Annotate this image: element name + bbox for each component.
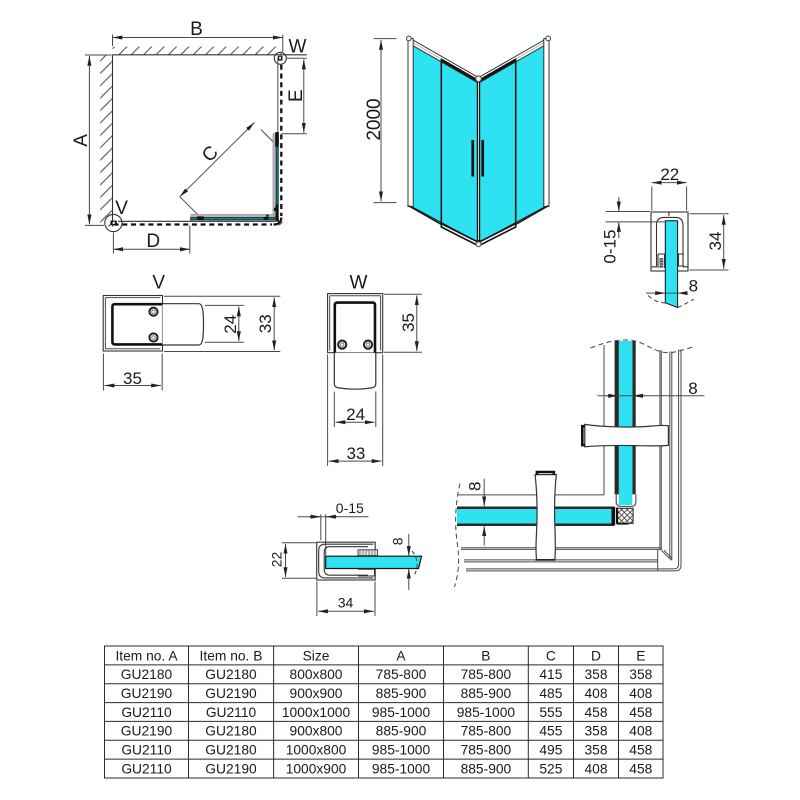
svg-text:GU2180: GU2180 xyxy=(205,743,257,758)
svg-text:Size: Size xyxy=(303,648,330,663)
svg-text:B: B xyxy=(190,19,203,40)
svg-text:Item no. A: Item no. A xyxy=(115,648,178,663)
svg-text:GU2180: GU2180 xyxy=(205,724,257,739)
svg-text:885-900: 885-900 xyxy=(376,724,427,739)
svg-text:8: 8 xyxy=(390,537,406,545)
svg-text:22: 22 xyxy=(660,165,679,184)
svg-text:1000x900: 1000x900 xyxy=(286,761,347,776)
svg-text:GU2180: GU2180 xyxy=(121,667,173,682)
svg-text:GU2180: GU2180 xyxy=(205,667,257,682)
svg-text:985-1000: 985-1000 xyxy=(372,761,431,776)
svg-text:33: 33 xyxy=(346,444,365,463)
svg-text:408: 408 xyxy=(629,724,652,739)
svg-text:35: 35 xyxy=(123,369,142,388)
svg-text:985-1000: 985-1000 xyxy=(372,743,431,758)
svg-text:B: B xyxy=(481,648,490,663)
svg-text:455: 455 xyxy=(539,724,562,739)
svg-text:458: 458 xyxy=(629,743,652,758)
svg-text:785-800: 785-800 xyxy=(376,667,427,682)
svg-text:408: 408 xyxy=(584,686,607,701)
svg-text:GU2190: GU2190 xyxy=(121,686,173,701)
svg-text:W: W xyxy=(289,37,307,58)
svg-text:D: D xyxy=(591,648,601,663)
svg-text:785-800: 785-800 xyxy=(461,667,512,682)
svg-text:E: E xyxy=(286,89,307,102)
svg-text:33: 33 xyxy=(256,314,275,333)
svg-text:0-15: 0-15 xyxy=(600,230,619,264)
svg-text:35: 35 xyxy=(399,313,418,332)
svg-text:495: 495 xyxy=(539,743,562,758)
svg-text:GU2190: GU2190 xyxy=(205,761,257,776)
svg-text:1000x800: 1000x800 xyxy=(286,743,347,758)
svg-text:1000x1000: 1000x1000 xyxy=(282,705,351,720)
svg-text:885-900: 885-900 xyxy=(461,761,512,776)
svg-text:900x800: 900x800 xyxy=(290,724,343,739)
svg-text:GU2110: GU2110 xyxy=(121,705,172,720)
svg-text:800x800: 800x800 xyxy=(290,667,343,682)
svg-text:C: C xyxy=(546,648,556,663)
svg-text:8: 8 xyxy=(466,482,485,491)
svg-text:C: C xyxy=(198,142,223,167)
svg-text:8: 8 xyxy=(688,379,697,398)
svg-text:24: 24 xyxy=(346,405,365,424)
svg-text:785-800: 785-800 xyxy=(461,743,512,758)
svg-text:408: 408 xyxy=(584,761,607,776)
svg-text:GU2190: GU2190 xyxy=(121,724,173,739)
svg-text:358: 358 xyxy=(629,667,652,682)
svg-text:885-900: 885-900 xyxy=(461,686,512,701)
svg-text:0-15: 0-15 xyxy=(336,500,364,516)
svg-text:GU2110: GU2110 xyxy=(121,761,172,776)
svg-text:22: 22 xyxy=(268,552,284,568)
svg-text:885-900: 885-900 xyxy=(376,686,427,701)
svg-text:785-800: 785-800 xyxy=(461,724,512,739)
svg-text:985-1000: 985-1000 xyxy=(372,705,431,720)
svg-text:W: W xyxy=(350,273,368,294)
svg-text:900x900: 900x900 xyxy=(290,686,343,701)
svg-text:E: E xyxy=(636,648,645,663)
svg-text:GU2190: GU2190 xyxy=(205,686,257,701)
svg-text:D: D xyxy=(146,231,160,252)
svg-text:34: 34 xyxy=(338,595,354,611)
svg-text:24: 24 xyxy=(221,315,240,334)
svg-text:525: 525 xyxy=(539,761,562,776)
svg-text:458: 458 xyxy=(629,705,652,720)
svg-text:A: A xyxy=(396,648,406,663)
svg-text:8: 8 xyxy=(689,277,698,296)
svg-text:V: V xyxy=(115,198,128,219)
svg-text:GU2110: GU2110 xyxy=(121,743,172,758)
svg-text:V: V xyxy=(152,273,165,294)
svg-text:358: 358 xyxy=(584,743,607,758)
svg-text:A: A xyxy=(71,134,92,147)
svg-text:2000: 2000 xyxy=(364,98,385,140)
svg-text:555: 555 xyxy=(539,705,562,720)
svg-text:GU2110: GU2110 xyxy=(206,705,257,720)
svg-text:34: 34 xyxy=(706,232,725,251)
svg-text:Item no. B: Item no. B xyxy=(200,648,263,663)
svg-text:458: 458 xyxy=(584,705,607,720)
svg-text:358: 358 xyxy=(584,724,607,739)
svg-text:485: 485 xyxy=(539,686,562,701)
svg-text:358: 358 xyxy=(584,667,607,682)
svg-text:985-1000: 985-1000 xyxy=(457,705,516,720)
svg-text:408: 408 xyxy=(629,686,652,701)
svg-text:415: 415 xyxy=(539,667,562,682)
svg-text:458: 458 xyxy=(629,761,652,776)
